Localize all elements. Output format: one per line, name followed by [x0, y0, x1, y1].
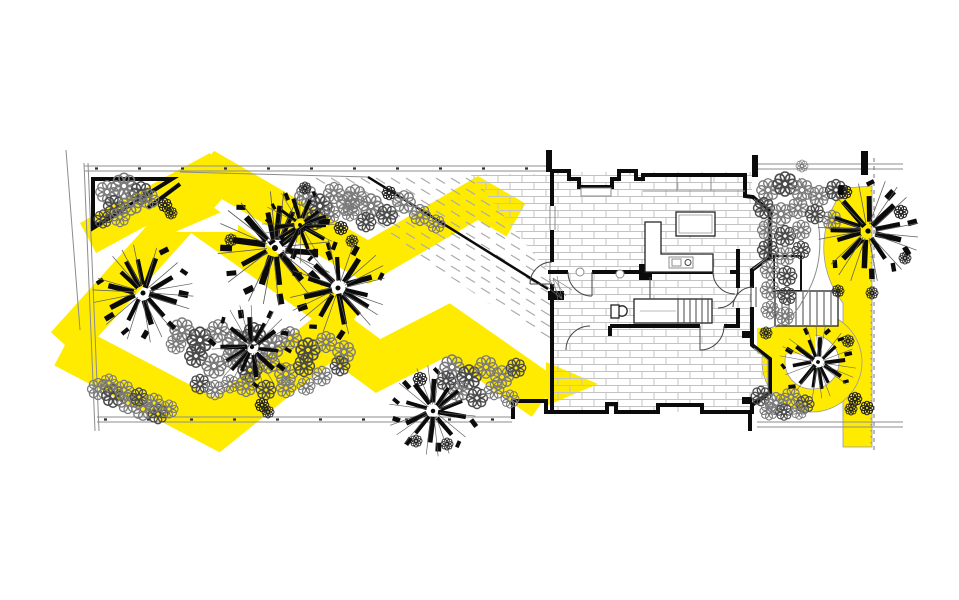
house-floor-brick — [550, 172, 752, 412]
door-stop-1 — [576, 268, 584, 276]
small-window — [581, 188, 611, 196]
garden-plan-drawing — [0, 0, 959, 600]
wc-cistern — [611, 305, 619, 318]
gate-post-left — [546, 150, 552, 172]
plan-canvas — [0, 0, 959, 600]
gate-post-right — [861, 151, 868, 175]
door-stop-2 — [616, 270, 624, 278]
chimney-breast-2 — [742, 397, 752, 404]
sink-drainer — [672, 259, 681, 266]
gate-post-mid — [752, 155, 758, 177]
chimney-breast-1 — [742, 331, 752, 338]
kitchen-island — [676, 212, 715, 236]
